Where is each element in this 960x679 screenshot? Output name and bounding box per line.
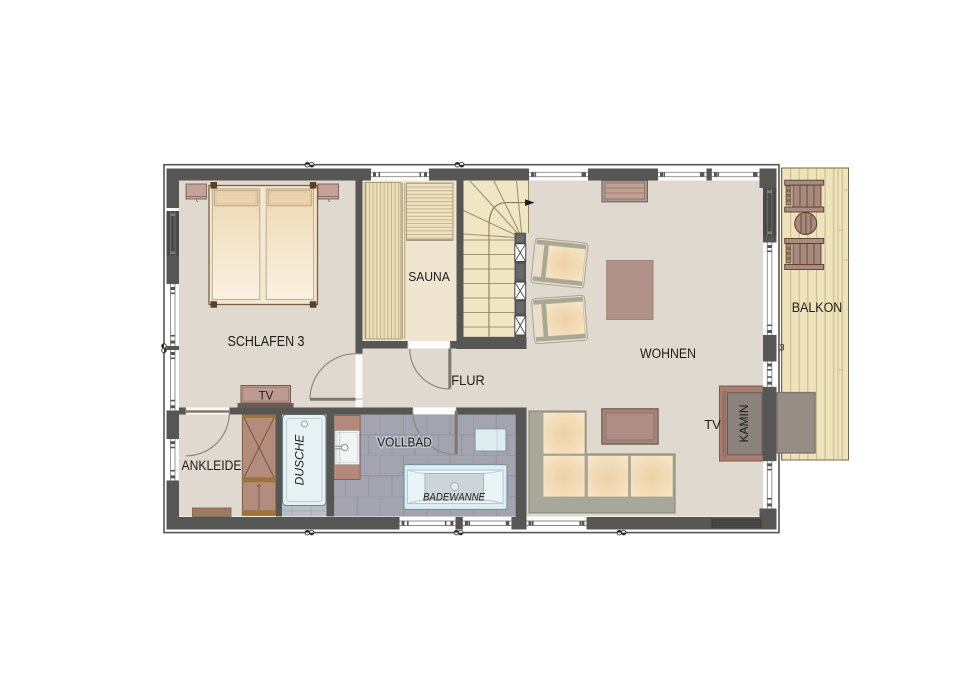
svg-text:ANKLEIDE: ANKLEIDE [182,458,242,473]
svg-text:TV: TV [259,391,274,403]
svg-text:SAUNA: SAUNA [408,269,450,284]
svg-text:3: 3 [780,343,785,353]
svg-text:SCHLAFEN 3: SCHLAFEN 3 [228,334,305,350]
svg-text:DUSCHE: DUSCHE [293,434,307,486]
svg-text:KAMIN: KAMIN [737,404,751,442]
svg-text:BALKON: BALKON [792,300,843,315]
svg-text:WOHNEN: WOHNEN [640,346,696,361]
svg-text:FLUR: FLUR [451,372,485,388]
svg-text:VOLLBAD: VOLLBAD [377,435,432,449]
svg-text:TV: TV [704,417,721,432]
svg-text:BADEWANNE: BADEWANNE [423,492,486,504]
